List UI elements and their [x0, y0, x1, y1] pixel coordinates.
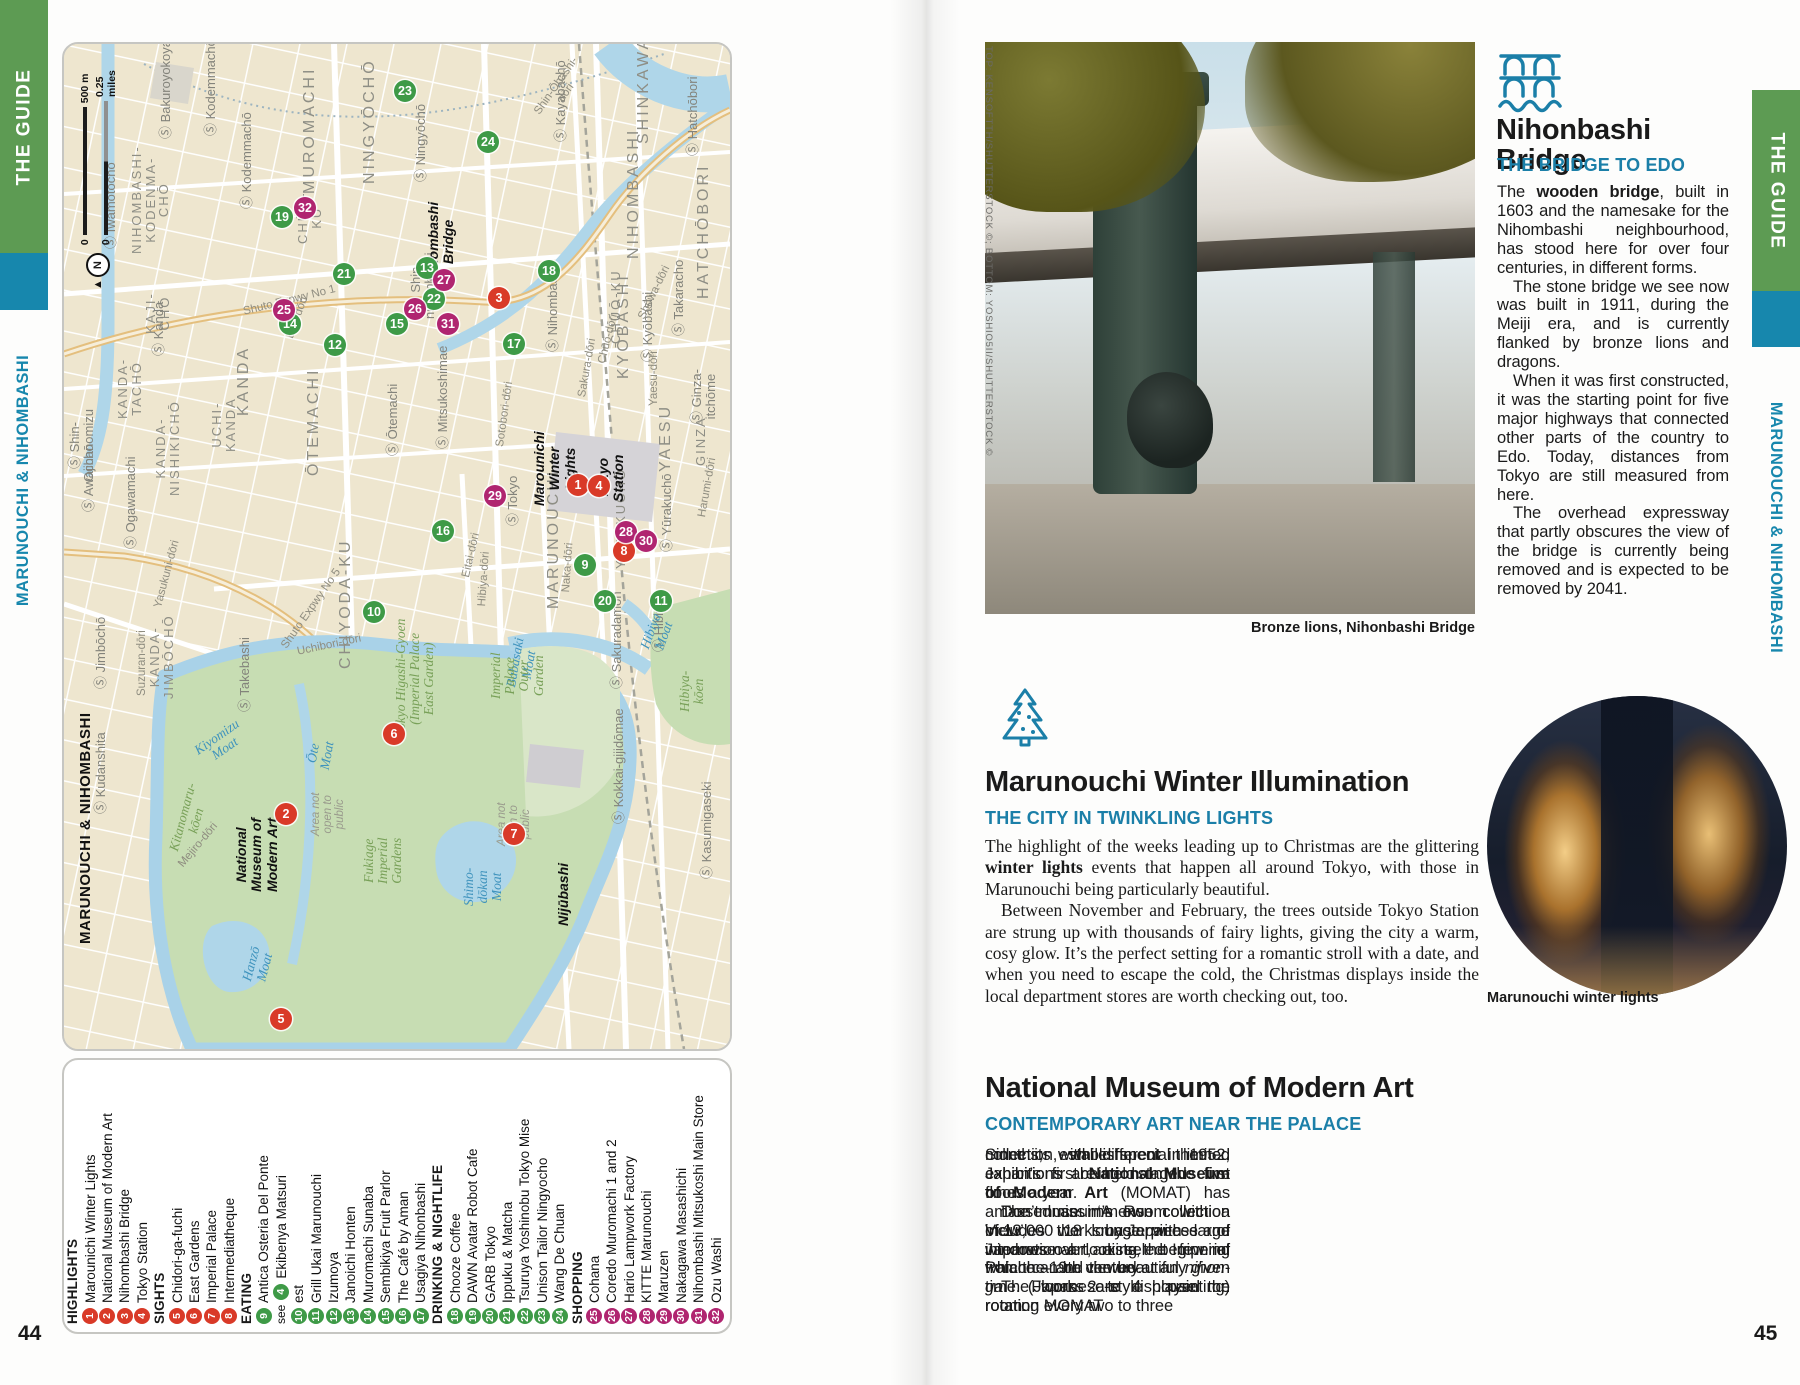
map-label-road: Sakura-dōri [576, 337, 598, 398]
article-body-winter: The highlight of the weeks leading up to… [985, 836, 1479, 1007]
map-label-water: HanzōMoat [240, 945, 277, 986]
legend-label: Unison Tailor Ningyocho [535, 1158, 550, 1303]
legend-item: 13Janoichi Honten [342, 1060, 359, 1324]
legend-item: 8Intermediatheque [221, 1060, 238, 1324]
map-label-note: Area notopen topublic [310, 793, 346, 836]
map-marker: 30 [635, 530, 657, 552]
page-number-right: 45 [1754, 1322, 1777, 1346]
map-scale-and-compass: ▲ N 0 500 m 0 0.25 miles [70, 52, 126, 290]
map-label-poi: NationalMuseum ofModern Art [234, 818, 280, 892]
map-label-road: Naka-dōri [560, 542, 576, 593]
map-label-sta: Ⓢ Kokkai-gijidōmae [612, 708, 626, 824]
body-paragraph: Don’t miss ‘A Room with a View’ – the lo… [985, 1203, 1230, 1316]
legend-bullet: 4 [273, 1284, 289, 1300]
legend-bullet: 23 [534, 1308, 550, 1324]
map-label-park: FukiageImperialGardens [362, 838, 405, 885]
legend-label: Muromachi Sunaba [361, 1186, 376, 1303]
legend-bullet: 21 [499, 1308, 515, 1324]
legend-section-title: SIGHTS [151, 1060, 168, 1324]
map-label-poi: Nijūbashi [556, 863, 571, 926]
legend-item: 9Antica Osteria Del Ponte [255, 1060, 272, 1324]
legend-bullet: 8 [221, 1308, 237, 1324]
legend-bullet: 26 [604, 1308, 620, 1324]
legend-label: Janoichi Honten [343, 1206, 358, 1303]
legend-bullet: 10 [291, 1308, 307, 1324]
legend-item: 29Maruzen [655, 1060, 672, 1324]
scale-m-label: 500 m [79, 73, 91, 103]
map-marker: 28 [615, 521, 637, 543]
map-label-road: Hibiya-dōri [476, 551, 492, 607]
body-paragraph: The highlight of the weeks leading up to… [985, 836, 1479, 900]
tab-chapter-right: MARUNOUCHI & NIHOMBASHI [1752, 347, 1800, 707]
map-label-road: Yaesu-dōri [648, 351, 660, 406]
legend-bullet: 3 [117, 1308, 133, 1324]
map-label-sta: Ⓢ Bakuroyokoyama [159, 42, 173, 139]
legend-label: Maruzen [656, 1250, 671, 1303]
tab-chapter-right-label: MARUNOUCHI & NIHOMBASHI [1767, 401, 1786, 652]
legend-bullet: 19 [465, 1308, 481, 1324]
map-label-sta: Ⓢ Ogawamachi [124, 457, 138, 550]
legend-bullet: 9 [256, 1308, 272, 1324]
map-marker: 5 [270, 1008, 292, 1030]
tab-the-guide-left-label: THE GUIDE [13, 68, 35, 185]
legend-section-title: DRINKING & NIGHTLIFE [429, 1060, 446, 1324]
page-number-left: 44 [18, 1322, 41, 1346]
legend-section-title: SHOPPING [568, 1060, 585, 1324]
legend-item: 18Chooze Coffee [447, 1060, 464, 1324]
legend-label: Grill Ukai Marunouchi [309, 1174, 324, 1303]
map-label-poi: MarounichiWinterLights [532, 431, 578, 506]
map-marker: 7 [503, 823, 525, 845]
legend-item: 17Usagiya Nihonbashi [412, 1060, 429, 1324]
article-kicker-bridge: THE BRIDGE TO EDO [1497, 155, 1685, 176]
map-label-road: Yasukuni-dōri [152, 539, 182, 609]
legend-item: 24Wang De Chuan [551, 1060, 568, 1324]
legend-section-title: EATING [238, 1060, 255, 1324]
body-paragraph: collection, while special limited exhibi… [985, 1146, 1230, 1203]
map-marker: 10 [363, 601, 385, 623]
legend-bullet: 4 [134, 1308, 150, 1324]
map-label-dist-lg: NIHOMBASHI [626, 128, 643, 259]
legend-label: Chooze Coffee [448, 1213, 463, 1303]
map-label-sta: Ⓢ Kodemmachō [204, 42, 218, 136]
map-marker: 3 [488, 287, 510, 309]
legend-item: 12Izumoya [325, 1060, 342, 1324]
tab-the-guide-right: THE GUIDE [1752, 90, 1800, 291]
map-label-sta: Ⓢ Hatchōbori [686, 77, 700, 157]
map-label-water: HibiyaMoat [638, 611, 677, 655]
map-label-dist-lg: CHIYODA-KU [338, 539, 355, 669]
legend-bullet: 1 [82, 1308, 98, 1324]
legend-bullet: 22 [517, 1308, 533, 1324]
legend-label: Cohana [587, 1256, 602, 1303]
map-label-water: Shimo-dōkanMoat [462, 868, 505, 906]
map-label-dist: UCHI-KANDA [210, 397, 237, 452]
legend-item: 2National Museum of Modern Art [99, 1060, 116, 1324]
tab-the-guide-left: THE GUIDE [0, 0, 48, 253]
map-label-maptitle: MARUNOUCHI & NIHOMBASHI [78, 713, 94, 945]
map-label-dist-lg: YAESU [658, 404, 675, 472]
legend-item: 27Hario Lampwork Factory [621, 1060, 638, 1324]
map-label-sta: Ⓢ Kanda [152, 302, 166, 356]
legend-label: Chidori-ga-fuchi [170, 1208, 185, 1303]
map-marker: 4 [588, 475, 610, 497]
map-legend-box: HIGHLIGHTS1Marounichi Winter Lights2Nati… [62, 1058, 732, 1334]
map-marker: 21 [333, 263, 355, 285]
legend-bullet: 18 [447, 1308, 463, 1324]
article-kicker-winter: THE CITY IN TWINKLING LIGHTS [985, 808, 1273, 829]
body-paragraph: The wooden bridge, built in 1603 and the… [1497, 183, 1729, 278]
map-marker: 22 [423, 288, 445, 310]
legend-bullet: 15 [378, 1308, 394, 1324]
legend-label: Tsuruya Yoshinobu Tokyo Mise [517, 1119, 532, 1303]
map-marker: 11 [650, 590, 672, 612]
legend-label: DAWN Avatar Robot Cafe [465, 1148, 480, 1303]
map-marker: 18 [538, 260, 560, 282]
legend-item: 20GARB Tokyo [481, 1060, 498, 1324]
map-marker: 2 [275, 803, 297, 825]
article-title-winter: Marunouchi Winter Illumination [985, 768, 1545, 798]
legend-label: Tokyo Station [135, 1222, 150, 1303]
map-label-dist: KANDA-TACHŌ [116, 358, 143, 419]
map-marker: 12 [324, 334, 346, 356]
map-marker: 25 [273, 299, 295, 321]
map-canvas: NIHOMBASHI-KODENMA-CHŌMUROMACHININGYŌCHŌ… [64, 44, 730, 1049]
caption-bridge: Bronze lions, Nihonbashi Bridge [985, 620, 1475, 636]
legend-bullet: 7 [204, 1308, 220, 1324]
legend-item: 15Sembikiya Fruit Parlor [377, 1060, 394, 1324]
map-marker: 8 [613, 540, 635, 562]
map-label-sta: Ⓢ Tokyo [506, 476, 520, 526]
legend-item: 25Cohana [586, 1060, 603, 1324]
map-box: ▲ N 0 500 m 0 0.25 miles NIH [62, 42, 732, 1051]
legend-label: KITTE Marunouchi [639, 1190, 654, 1303]
map-label-dist-lg: HATCHŌBORI [696, 164, 713, 299]
christmas-tree-icon [998, 686, 1052, 748]
map-marker: 6 [383, 723, 405, 745]
legend-item: 14Muromachi Sunaba [360, 1060, 377, 1324]
legend-bullet: 30 [673, 1308, 689, 1324]
legend-item: 26Coredo Muromachi 1 and 2 [603, 1060, 620, 1324]
legend-label: Imperial Palace [204, 1210, 219, 1303]
map-marker: 23 [394, 80, 416, 102]
map-label-dist-lg: NINGYŌCHŌ [362, 58, 379, 184]
legend-label: est [291, 1285, 306, 1303]
map-label-water: ŌteMoat [304, 738, 337, 771]
legend-label: Izumoya [326, 1252, 341, 1303]
map-label-park: Hibiya-kōen [678, 671, 706, 712]
map-label-road: Harumi-dōri [696, 457, 718, 518]
legend-bullet: 12 [326, 1308, 342, 1324]
map-marker: 9 [574, 554, 596, 576]
map-label-sta: Ⓢ Ōtemachi [386, 384, 400, 456]
article-body-bridge: The wooden bridge, built in 1603 and the… [1497, 183, 1729, 599]
legend-item: 4Tokyo Station [134, 1060, 151, 1324]
legend-bullet: 13 [343, 1308, 359, 1324]
map-label-dist: KANDA-NISHIKICHŌ [154, 400, 181, 496]
legend-label: Sembikiya Fruit Parlor [378, 1170, 393, 1303]
legend-item: 32Ozu Washi [707, 1060, 724, 1324]
legend-content: HIGHLIGHTS1Marounichi Winter Lights2Nati… [64, 1060, 730, 1332]
legend-bullet: 28 [639, 1308, 655, 1324]
bridge-pillar-far [1373, 252, 1415, 482]
map-label-sta: Ⓢ Mitsukoshimae [436, 346, 450, 449]
bronze-lion [1127, 372, 1213, 468]
map-label-sta: Ⓢ Kasumigaseki [700, 781, 714, 879]
legend-label: Intermediatheque [222, 1198, 237, 1303]
map-marker: 16 [432, 520, 454, 542]
map-label-park: Kōkyo Higashi-Gyoen(Imperial PalaceEast … [394, 619, 437, 739]
legend-item: 11Grill Ukai Marunouchi [307, 1060, 324, 1324]
map-label-sta: Ⓢ Takaracho [672, 260, 686, 336]
map-label-sta: Ⓢ Takebashi [238, 637, 252, 712]
map-marker: 20 [594, 590, 616, 612]
legend-bullet: 6 [186, 1308, 202, 1324]
map-label-road: Sotobori-dōri [494, 381, 515, 448]
scale-miles-label: 0.25 miles [94, 52, 118, 97]
scale-bar-metric: 0 500 m [79, 52, 91, 245]
legend-label: Nihombashi Bridge [117, 1189, 132, 1303]
museum-col-3: collection, while special limited exhibi… [985, 1146, 1230, 1316]
map-label-road: Suzuran-dōri [136, 630, 148, 696]
legend-item: 22Tsuruya Yoshinobu Tokyo Mise [516, 1060, 533, 1324]
legend-label: Wang De Chuan [552, 1204, 567, 1303]
body-paragraph: When it was first constructed, it was th… [1497, 372, 1729, 504]
legend-bullet: 20 [482, 1308, 498, 1324]
tab-teal-block-right [1752, 291, 1800, 347]
map-label-sta: Ⓢ Shin-Ochanomizu [68, 409, 95, 482]
legend-item: 21Ippuku & Matcha [499, 1060, 516, 1324]
map-label-dist: KANDA-JIMBŌCHŌ [148, 614, 175, 699]
scale-zero-m: 0 [79, 239, 91, 245]
map-label-sta: Ⓢ Yūrakuchō [660, 473, 674, 552]
photo-nihonbashi-bridge [985, 42, 1475, 614]
scale-bar-m [83, 107, 87, 235]
legend-label: Ekibenya Matsuri [274, 1175, 289, 1279]
legend-item: 16The Café by Aman [394, 1060, 411, 1324]
street-level [985, 484, 1475, 614]
legend-label: Nihombashi Mitsukoshi Main Store [691, 1095, 706, 1303]
body-paragraph: The overhead expressway that partly obsc… [1497, 504, 1729, 599]
legend-bullet: 24 [552, 1308, 568, 1324]
map-marker: 24 [477, 131, 499, 153]
scale-bar-mi [104, 101, 108, 235]
legend-bullet: 5 [169, 1308, 185, 1324]
legend-bullet: 11 [308, 1308, 324, 1324]
map-label-water: KiyomizuMoat [192, 717, 250, 769]
legend-label: East Gardens [187, 1220, 202, 1303]
legend-label: Coredo Muromachi 1 and 2 [604, 1139, 619, 1303]
map-label-dist-lg: KYŌBASHI [616, 273, 633, 379]
photo-winter-lights [1487, 696, 1787, 996]
legend-label: Ozu Washi [709, 1237, 724, 1303]
map-label-sta: Ⓢ Ningyōchō [414, 104, 428, 182]
legend-label: Marounichi Winter Lights [83, 1154, 98, 1303]
page-gutter [890, 0, 960, 1385]
light-glow [1487, 926, 1787, 996]
photo-credit: TOP: KENSOFTTH/SHUTTERSTOCK ©; BOTTOM: Y… [983, 46, 994, 456]
map-marker: 17 [503, 333, 525, 355]
legend-item: 23Unison Tailor Ningyocho [534, 1060, 551, 1324]
map-marker: 19 [271, 206, 293, 228]
legend-label: GARB Tokyo [483, 1226, 498, 1303]
legend-item: see4Ekibenya Matsuri [273, 1060, 290, 1324]
map-marker: 27 [433, 269, 455, 291]
caption-winter: Marunouchi winter lights [1487, 990, 1787, 1006]
legend-item: 10est [290, 1060, 307, 1324]
legend-item: 30Nakagawa Masashichi [673, 1060, 690, 1324]
tab-the-guide-right-label: THE GUIDE [1765, 132, 1787, 249]
legend-bullet: 14 [360, 1308, 376, 1324]
legend-item: 1Marounichi Winter Lights [81, 1060, 98, 1324]
bridge-icon [1497, 50, 1563, 116]
legend-label: National Museum of Modern Art [100, 1113, 115, 1303]
scale-zero-mi: 0 [100, 239, 112, 245]
north-letter: N [86, 253, 110, 277]
map-label-sta: Ⓢ Kodemmachō [240, 112, 254, 209]
map-label-dist-lg: ŌTEMACHI [306, 368, 323, 476]
legend-bullet: 16 [395, 1308, 411, 1324]
map-label-sta: Ⓢ Jimbōchō [94, 617, 108, 689]
tab-chapter-left: MARUNOUCHI & NIHOMBASHI [0, 310, 48, 650]
legend-bullet: 2 [99, 1308, 115, 1324]
legend-bullet: 32 [708, 1308, 724, 1324]
map-label-dist: NIHOMBASHI-KODENMA-CHŌ [130, 145, 171, 254]
article-title-museum: National Museum of Modern Art [985, 1074, 1585, 1104]
legend-label: Usagiya Nihonbashi [413, 1183, 428, 1303]
map-marker: 15 [386, 313, 408, 335]
legend-item: 31Nihombashi Mitsukoshi Main Store [690, 1060, 707, 1324]
map-label-dist-lg: MUROMACHI [302, 67, 319, 194]
legend-item: 28KITTE Marunouchi [638, 1060, 655, 1324]
body-paragraph: The stone bridge we see now was built in… [1497, 278, 1729, 373]
legend-label: Nakagawa Masashichi [674, 1168, 689, 1303]
legend-item: 19DAWN Avatar Robot Cafe [464, 1060, 481, 1324]
map-label-dist-lg: KANDA [236, 346, 253, 416]
legend-item: 7Imperial Palace [203, 1060, 220, 1324]
legend-bullet: 27 [621, 1308, 637, 1324]
map-marker: 32 [294, 197, 316, 219]
tab-chapter-left-label: MARUNOUCHI & NIHOMBASHI [15, 354, 34, 605]
guidebook-spread: THE GUIDE MARUNOUCHI & NIHOMBASHI 44 [0, 0, 1800, 1385]
map-marker: 1 [567, 474, 589, 496]
legend-bullet: 25 [586, 1308, 602, 1324]
map-label-park: ImperialPalaceOuterGarden [489, 653, 546, 700]
north-arrow-icon: ▲ [92, 279, 104, 290]
legend-section-title: HIGHLIGHTS [64, 1060, 81, 1324]
map-label-sta: Ⓢ Ginza-itchōme [690, 369, 717, 424]
article-kicker-museum: CONTEMPORARY ART NEAR THE PALACE [985, 1114, 1361, 1135]
legend-bullet: 17 [413, 1308, 429, 1324]
body-paragraph: Between November and February, the trees… [985, 900, 1479, 1007]
legend-label: Hario Lampwork Factory [622, 1156, 637, 1303]
map-marker: 26 [404, 298, 426, 320]
map-marker: 29 [484, 485, 506, 507]
tab-teal-block-left [0, 253, 48, 310]
legend-label: Antica Osteria Del Ponte [256, 1155, 271, 1303]
legend-label: The Café by Aman [396, 1191, 411, 1303]
map-label-sta: Ⓢ Kudanshita [94, 732, 108, 814]
north-compass-icon: ▲ N [86, 253, 110, 290]
legend-item: 3Nihombashi Bridge [116, 1060, 133, 1324]
legend-label: Ippuku & Matcha [500, 1202, 515, 1303]
map-marker: 31 [437, 313, 459, 335]
legend-item: 5Chidori-ga-fuchi [168, 1060, 185, 1324]
legend-item: 6East Gardens [186, 1060, 203, 1324]
legend-bullet: 29 [656, 1308, 672, 1324]
scale-bar-miles: 0 0.25 miles [94, 52, 118, 245]
legend-bullet: 31 [691, 1308, 707, 1324]
